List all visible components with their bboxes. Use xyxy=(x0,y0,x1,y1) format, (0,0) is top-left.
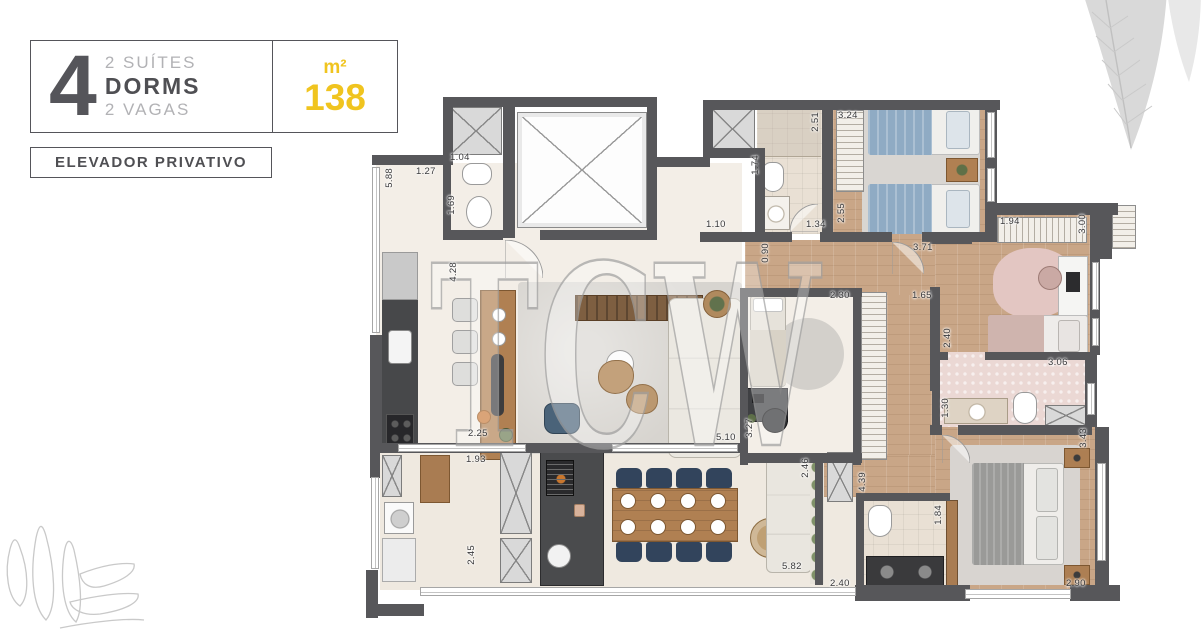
toilet xyxy=(762,162,784,192)
window xyxy=(1097,463,1106,561)
window xyxy=(1087,383,1095,415)
twin-bed-pillow xyxy=(946,111,970,149)
dining-chair xyxy=(646,542,672,562)
dorms-block: 4 2 SUÍTES DORMS 2 VAGAS xyxy=(31,41,272,132)
bath2-counter xyxy=(944,398,1008,424)
dim-label: 1.93 xyxy=(466,454,486,465)
dim-label: 0.90 xyxy=(760,243,771,263)
sliding-door-window xyxy=(420,587,856,596)
hall-plant xyxy=(703,290,731,318)
dorms-labels: 2 SUÍTES DORMS 2 VAGAS xyxy=(105,53,201,120)
shaft-box xyxy=(450,107,502,155)
leaf-decoration-top-right xyxy=(1054,0,1204,160)
wall xyxy=(1090,215,1112,259)
dining-chair xyxy=(616,542,642,562)
dining-chair xyxy=(676,468,702,488)
wall xyxy=(856,493,864,592)
office-chair xyxy=(762,408,788,433)
vanity-screen xyxy=(1066,272,1080,292)
dorms-count: 4 xyxy=(49,48,95,125)
dim-label: 3.71 xyxy=(913,242,933,253)
wall xyxy=(815,453,823,585)
dim-label: 2.25 xyxy=(468,428,488,439)
kitchen-sink xyxy=(388,330,412,364)
bed-pillow xyxy=(753,298,783,312)
dining-chair xyxy=(706,468,732,488)
shaft-box xyxy=(710,107,755,151)
plate xyxy=(492,308,506,322)
window xyxy=(987,168,995,202)
wall xyxy=(820,232,892,242)
area-value: 138 xyxy=(304,79,366,116)
dim-label: 2.51 xyxy=(810,112,821,132)
wall xyxy=(503,100,515,238)
bar-stool xyxy=(452,362,478,386)
dim-label: 5.88 xyxy=(384,168,395,188)
wall xyxy=(930,425,942,435)
corridor-closet xyxy=(861,292,887,460)
plate xyxy=(650,493,666,509)
window xyxy=(1092,262,1099,310)
wall xyxy=(700,232,792,242)
bed-pillow xyxy=(1058,320,1080,352)
plate xyxy=(710,493,726,509)
dim-label: 2.46 xyxy=(800,458,811,478)
wall xyxy=(855,585,970,601)
wall xyxy=(858,493,950,501)
wicker-pouf xyxy=(626,384,658,414)
dim-label: 3.27 xyxy=(744,418,755,438)
dorms-label: DORMS xyxy=(105,73,201,100)
window xyxy=(398,444,526,452)
dim-label: 2.30 xyxy=(830,290,850,301)
plate xyxy=(650,519,666,535)
wall xyxy=(372,155,446,165)
dim-label: 1.04 xyxy=(450,152,470,163)
dim-label: 1.34 xyxy=(806,219,826,230)
nightstand xyxy=(1064,448,1090,468)
double-sink-counter xyxy=(866,556,944,586)
kitchen-upper-cabinet xyxy=(382,252,418,300)
wall xyxy=(958,425,1092,435)
dim-label: 3.06 xyxy=(1048,357,1068,368)
wall xyxy=(853,290,861,465)
nightstand xyxy=(946,158,978,182)
wall xyxy=(540,230,657,240)
plate xyxy=(710,519,726,535)
dim-label: 5.10 xyxy=(716,432,736,443)
dim-label: 2.45 xyxy=(466,545,477,565)
plate xyxy=(680,519,696,535)
dim-label: 4.28 xyxy=(448,262,459,282)
pitcher xyxy=(574,504,585,517)
door-arc xyxy=(505,240,543,278)
twin-bed-blanket xyxy=(868,184,932,234)
toilet xyxy=(868,505,892,537)
dim-label: 3.24 xyxy=(838,110,858,121)
dim-label: 1.74 xyxy=(750,155,761,175)
twin-bed-pillow xyxy=(946,190,970,228)
bed-blanket xyxy=(988,315,1044,357)
window xyxy=(965,589,1071,599)
twin-bed-blanket xyxy=(868,105,932,155)
area-block: m² 138 xyxy=(272,41,397,132)
plate xyxy=(680,493,696,509)
area-unit-label: m² xyxy=(323,57,346,79)
dim-label: 1.30 xyxy=(940,398,951,418)
dim-label: 3.00 xyxy=(1077,214,1088,234)
wall xyxy=(740,288,748,465)
dim-label: 1.84 xyxy=(933,505,944,525)
unit-summary-badge: 4 2 SUÍTES DORMS 2 VAGAS m² 138 xyxy=(30,40,398,133)
dim-label: 2.40 xyxy=(830,578,850,589)
blue-armchair xyxy=(544,403,580,434)
dim-label: 4.39 xyxy=(857,472,868,492)
bar-stool xyxy=(452,298,478,322)
window xyxy=(371,477,379,569)
plate xyxy=(620,519,636,535)
vanity-side-cabinet xyxy=(946,500,958,590)
dim-label: 3.43 xyxy=(1078,428,1089,448)
wall xyxy=(932,352,940,427)
wall xyxy=(655,157,710,167)
bbq-grill xyxy=(546,460,574,496)
bar-stool xyxy=(452,330,478,354)
dim-label: 2.90 xyxy=(1066,578,1086,589)
round-sink xyxy=(547,544,571,568)
leaf-decoration-bottom-left xyxy=(0,514,150,644)
serving-board xyxy=(491,354,504,416)
wood-cabinet xyxy=(420,455,450,503)
vagas-label: 2 VAGAS xyxy=(105,100,201,120)
dining-chair xyxy=(676,542,702,562)
laundry-counter xyxy=(382,538,416,582)
plate xyxy=(492,332,506,346)
wall xyxy=(443,230,503,240)
plate xyxy=(620,493,636,509)
dining-chair xyxy=(706,542,732,562)
laundry-cabinet xyxy=(382,455,402,497)
washbasin xyxy=(466,196,492,228)
dim-label: 1.69 xyxy=(446,195,457,215)
dim-label: 1.94 xyxy=(1000,216,1020,227)
window xyxy=(1092,318,1099,346)
wall xyxy=(703,100,1000,110)
bed-pillow xyxy=(1036,468,1058,512)
fruit-bowl xyxy=(477,410,491,424)
toilet xyxy=(462,163,492,185)
dim-label: 2.55 xyxy=(836,203,847,223)
bedroom1-closet xyxy=(836,110,864,192)
wall xyxy=(370,335,382,443)
plant-pot xyxy=(499,428,513,442)
wall xyxy=(988,203,1118,215)
vanity-chair xyxy=(1038,266,1062,290)
window xyxy=(987,112,995,158)
private-elevator-badge: ELEVADOR PRIVATIVO xyxy=(30,147,272,178)
wall xyxy=(443,97,657,107)
shaft-box xyxy=(1045,405,1087,426)
private-elevator-label: ELEVADOR PRIVATIVO xyxy=(55,154,247,171)
dining-chair xyxy=(646,468,672,488)
bed-pillow xyxy=(1036,516,1058,560)
dim-label: 2.40 xyxy=(942,328,953,348)
washing-machine xyxy=(384,502,414,534)
wall xyxy=(930,232,972,244)
dining-chair xyxy=(616,468,642,488)
dim-label: 1.65 xyxy=(912,290,932,301)
window xyxy=(372,167,380,333)
bed-blanket xyxy=(972,463,1024,565)
dim-label: 1.10 xyxy=(706,219,726,230)
laptop xyxy=(752,394,764,403)
dim-label: 5.82 xyxy=(782,561,802,572)
door-arc xyxy=(942,435,970,463)
private-elevator-cab xyxy=(517,112,647,228)
wall xyxy=(366,604,424,616)
shaft-box xyxy=(500,538,532,583)
floorplan-page: 4 2 SUÍTES DORMS 2 VAGAS m² 138 ELEVADOR… xyxy=(0,0,1204,644)
wall xyxy=(985,352,1090,360)
stove xyxy=(386,414,414,446)
window xyxy=(612,444,738,452)
suites-label: 2 SUÍTES xyxy=(105,53,201,73)
shaft-box xyxy=(500,452,532,534)
dim-label: 1.27 xyxy=(416,166,436,177)
toilet xyxy=(1013,392,1037,424)
bed-blanket xyxy=(750,330,786,386)
wall xyxy=(647,100,657,238)
